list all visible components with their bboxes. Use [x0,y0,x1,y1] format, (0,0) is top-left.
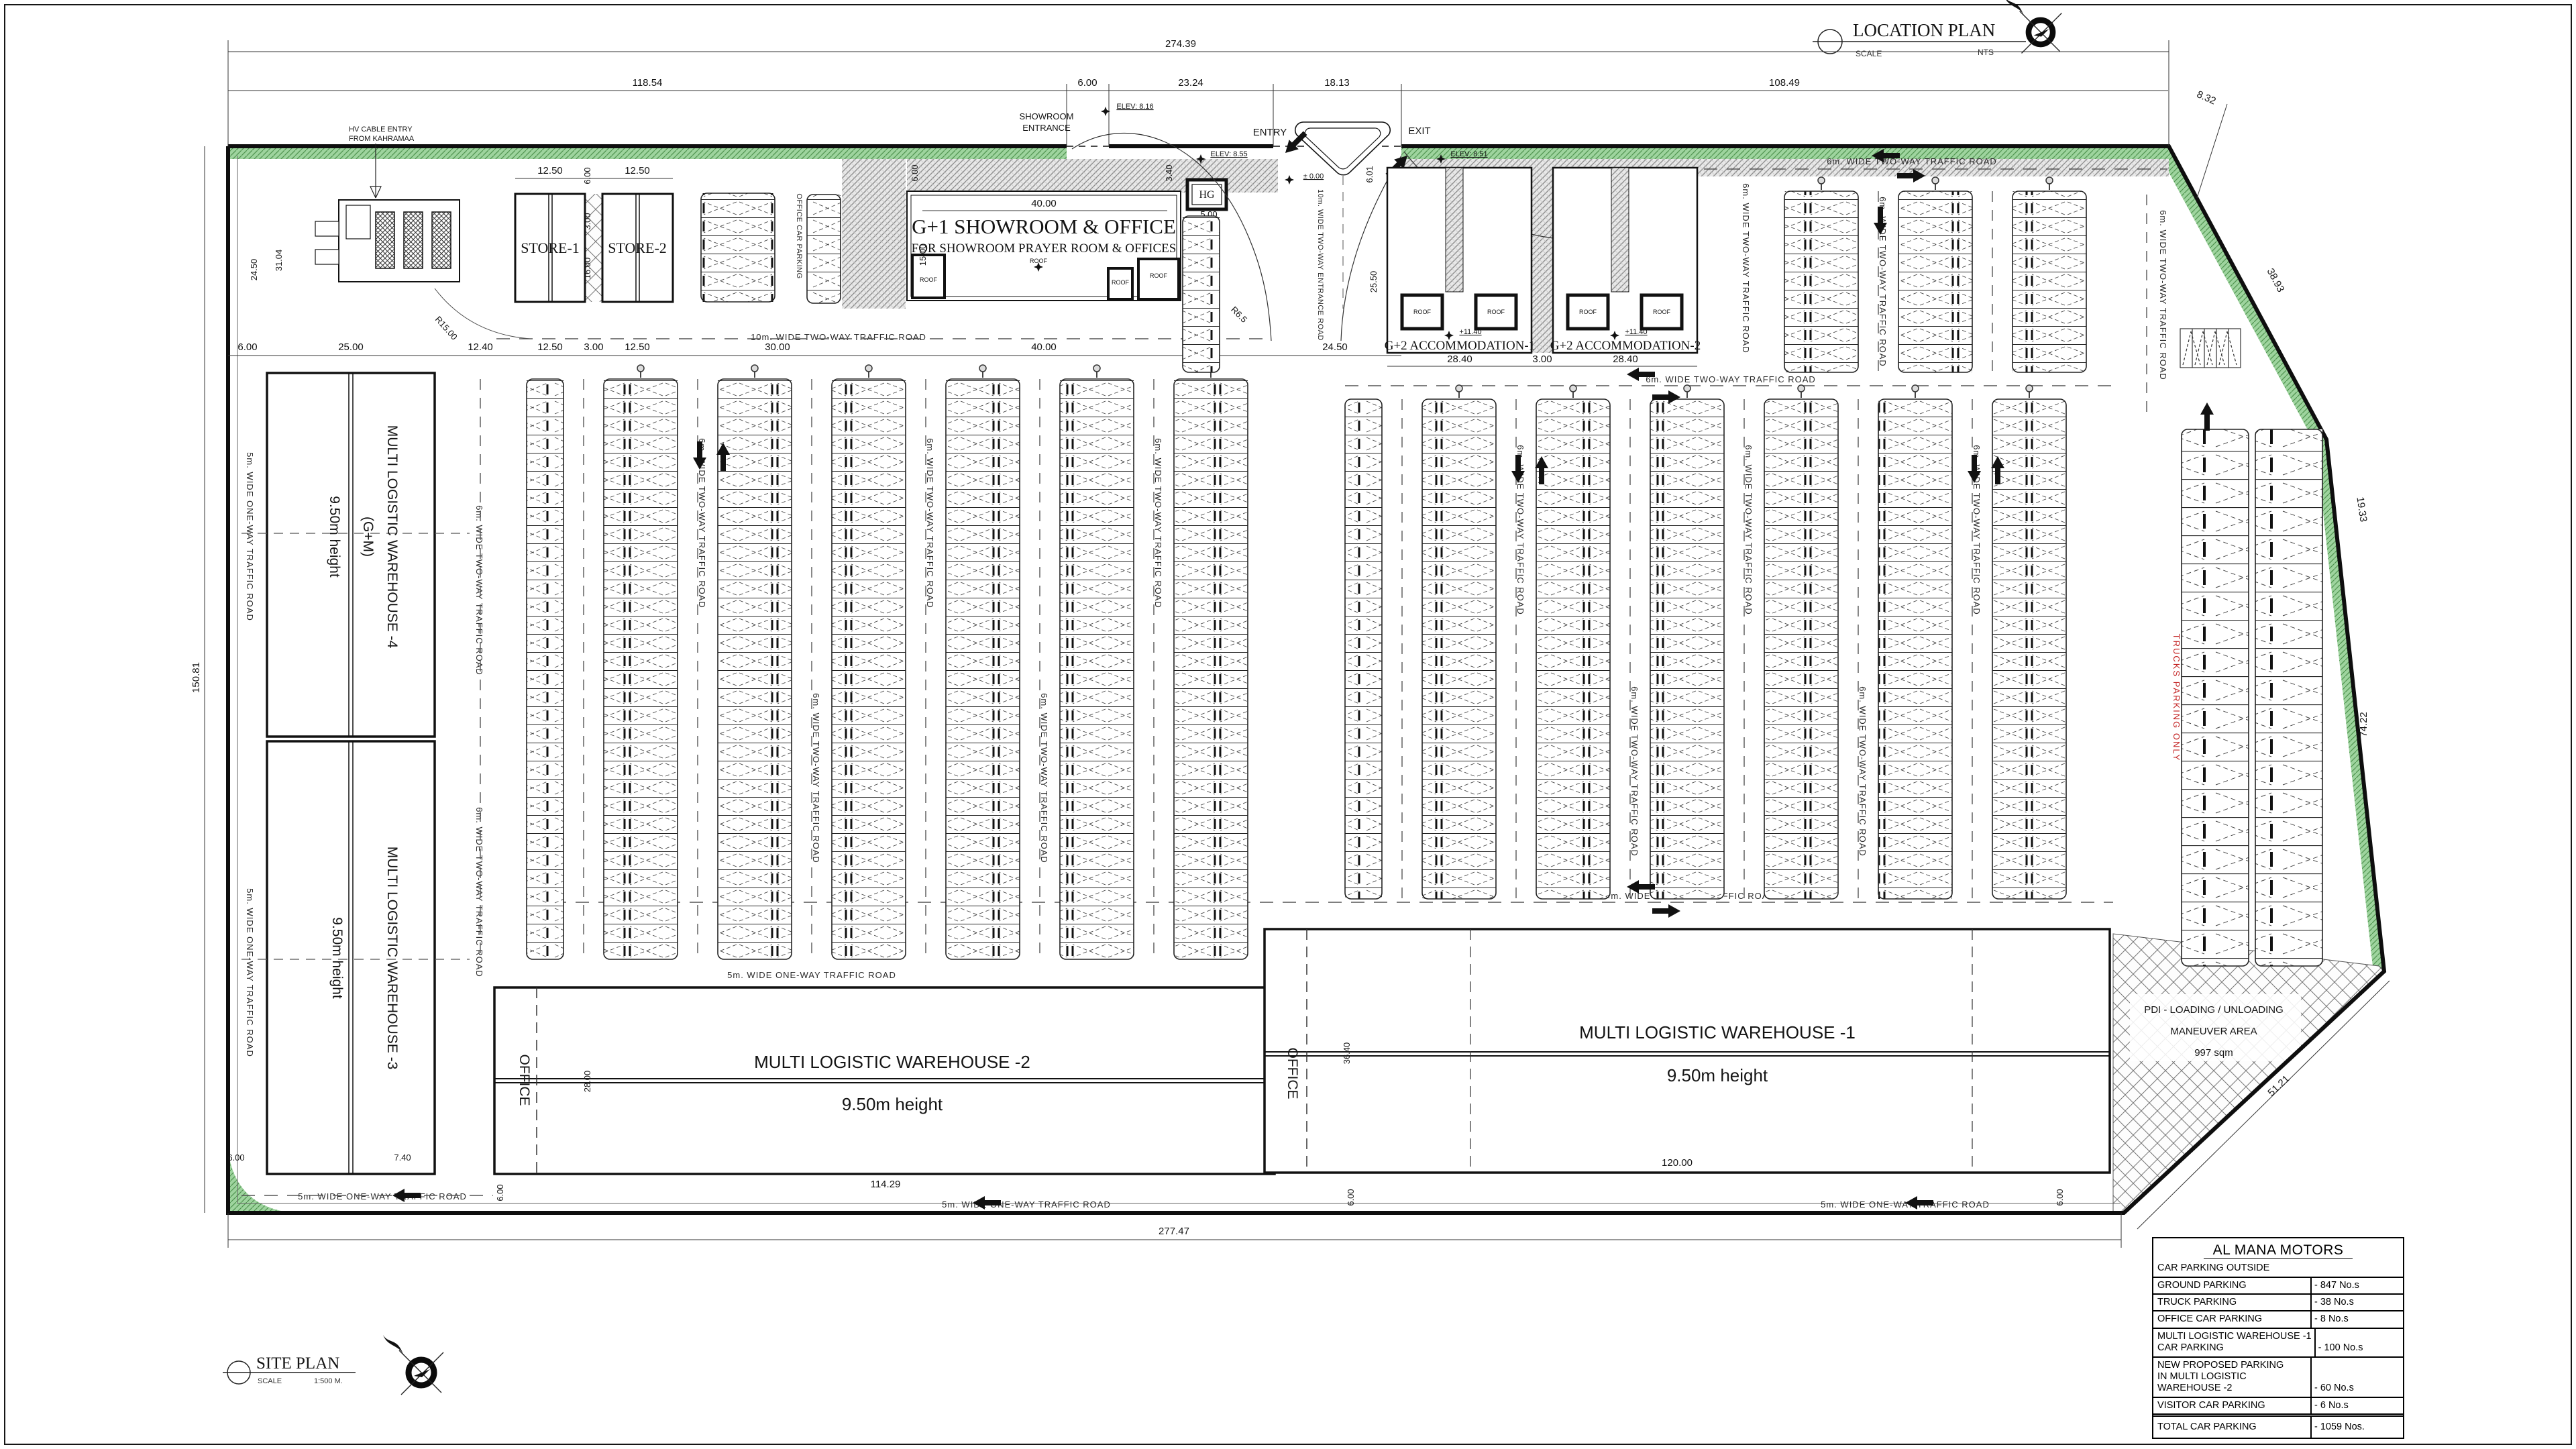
room-roof-label-2: ROOF [1112,279,1130,286]
parking-summary-table: AL MANA MOTORS CAR PARKING OUTSIDE GROUN… [2152,1237,2404,1439]
road-6m-gap-7: 6m. WIDE TWO-WAY TRAFFIC ROAD [1743,445,1754,615]
dim-6-00-stores: 6.00 [582,167,592,184]
entrance-road-label: 10m. WIDE TWO-WAY ENTRANCE ROAD [1316,189,1324,341]
acc2-roof-2: ROOF [1653,309,1671,315]
dim-23-24: 23.24 [1178,77,1203,89]
dim-25-50: 25.50 [1368,271,1379,293]
site-plan-drawing: PDI - LOADING / UNLOADING MANEUVER AREA … [0,0,2576,1449]
road-6m-wh4-side: 6m. WIDE TWO-WAY TRAFFIC ROAD [474,505,484,676]
dim-24-50-left: 24.50 [249,259,259,281]
road-5m-left-mid: 5m. WIDE ONE-WAY TRAFFIC ROAD [727,970,896,980]
dim-277-47: 277.47 [1159,1226,1189,1237]
acc2-label: G+2 ACCOMMODATION-2 [1550,339,1701,353]
road-6m-right-top: 6m. WIDE TWO-WAY TRAFFIC ROAD [1646,374,1816,384]
warehouse4-label: MULTI LOGISTIC WAREHOUSE -4 [384,425,400,649]
warehouse1-office-label: OFFICE [1285,1048,1300,1099]
location-plan-title: LOCATION PLAN [1853,20,1995,40]
row-label: TOTAL CAR PARKING [2157,1421,2308,1433]
location-plan-scale-label: SCALE [1856,49,1882,58]
dim-8-32: 8.32 [2195,89,2218,107]
road-6m-gap-3: 6m. WIDE TWO-WAY TRAFFIC ROAD [1153,438,1163,608]
row-label-2: CAR PARKING [2157,1342,2312,1354]
radius-6-5: R6.5 [1229,305,1249,325]
road-6m-gap-5: 6m. WIDE TWO-WAY TRAFFIC ROAD [1039,693,1049,863]
table-row: TRUCK PARKING - 38 No.s [2153,1293,2403,1310]
site-plan-scale-label: SCALE [258,1377,282,1385]
pdi-area-value: 997 sqm [2194,1047,2233,1059]
showroom-entrance-label: SHOWROOM [1020,111,1074,121]
radius-15-00: R15.00 [433,314,460,341]
exit-label: EXIT [1408,125,1430,137]
table-row: MULTI LOGISTIC WAREHOUSE -1 CAR PARKING … [2153,1328,2403,1356]
showroom-entrance-label-2: ENTRANCE [1022,123,1071,133]
dim-40-00-road: 40.00 [1031,341,1057,353]
pdi-label-2: MANEUVER AREA [2170,1026,2257,1037]
dim-150-81: 150.81 [191,662,202,693]
warehouse4-height: 9.50m height [327,496,342,578]
trucks-parking-label: TRUCKS PARKING ONLY [2171,634,2182,762]
site-plan-titleblock: SITE PLAN SCALE 1:500 M. [223,1335,443,1395]
dim-12-50-a: 12.50 [537,341,563,353]
dim-total-top: 274.39 [1165,38,1196,50]
office-parking-label: OFFICE CAR PARKING [795,193,803,278]
row-label: MULTI LOGISTIC WAREHOUSE -1 [2157,1331,2312,1342]
showroom-title: G+1 SHOWROOM & OFFICE [912,215,1176,238]
site-plan-sheet: { "colors": {"line":"#151515","green":"#… [0,0,2576,1449]
warehouse-3: MULTI LOGISTIC WAREHOUSE -3 9.50m height [241,741,470,1174]
showroom-subtitle: FOR SHOWROOM PRAYER ROOM & OFFICES [912,241,1177,256]
dim-16-00: 16.00 [582,258,592,280]
acc2-roof-level: +11.40 [1625,328,1647,336]
dim-40-00-showroom: 40.00 [1031,198,1057,209]
warehouse2-label: MULTI LOGISTIC WAREHOUSE -2 [754,1052,1030,1072]
warehouse1-height: 9.50m height [1667,1065,1768,1085]
dim-18-13: 18.13 [1324,77,1350,89]
dim-114-29: 114.29 [871,1179,901,1190]
dim-acc2-w: 28.40 [1613,354,1638,365]
dim-3-40: 3.40 [1164,164,1174,181]
dim-6-00-wh1a: 6.00 [1346,1189,1356,1205]
dim-15-00: 15.00 [918,244,928,266]
dim-store2-w: 12.50 [625,165,650,176]
road-6m-acc-side: 6m. WIDE TWO-WAY TRAFFIC ROAD [1741,183,1751,354]
dim-19-33: 19.33 [2354,496,2369,523]
dim-31-04: 31.04 [274,250,284,272]
table-row: NEW PROPOSED PARKING IN MULTI LOGISTIC W… [2153,1356,2403,1397]
row-label: OFFICE CAR PARKING [2157,1313,2308,1325]
warehouse4-floors: (G+M) [360,517,376,557]
row-value: - 38 No.s [2310,1295,2403,1310]
warehouse1-label: MULTI LOGISTIC WAREHOUSE -1 [1579,1022,1856,1042]
dim-3-00-gap: 3.00 [582,213,592,229]
road-6m-gap-2: 6m. WIDE TWO-WAY TRAFFIC ROAD [925,438,935,608]
dim-120-00: 120.00 [1662,1157,1693,1169]
road-5m-left-edge-2: 5m. WIDE ONE-WAY TRAFFIC ROAD [245,888,255,1057]
acc1-roof-1: ROOF [1413,309,1432,315]
acc2-roof-1: ROOF [1579,309,1597,315]
dim-6-00-corner: 6.00 [227,1152,244,1163]
acc1-roof-2: ROOF [1487,309,1505,315]
dim-acc1-w: 28.40 [1447,354,1472,365]
road-5m-left-edge-1: 5m. WIDE ONE-WAY TRAFFIC ROAD [245,452,255,621]
acc1-label: G+2 ACCOMMODATION-1 [1385,339,1535,353]
row-value: - 1059 Nos. [2310,1417,2403,1438]
acc1-roof-level: +11.40 [1459,328,1481,336]
row-label: GROUND PARKING [2157,1280,2308,1291]
room-roof-label-1: ROOF [920,276,938,283]
dim-108-49: 108.49 [1769,77,1800,89]
location-plan-scale-value: NTS [1978,48,1994,57]
pdi-label: PDI - LOADING / UNLOADING [2144,1004,2284,1016]
dim-12-40: 12.40 [468,341,493,353]
dim-24-50-road: 24.50 [1322,341,1348,353]
dim-acc-gap: 3.00 [1532,354,1552,365]
dim-7-40: 7.40 [394,1152,411,1163]
site-plan-title: SITE PLAN [256,1354,339,1373]
warehouse-1: OFFICE MULTI LOGISTIC WAREHOUSE -1 9.50m… [1265,929,2110,1206]
dim-6-00-wh2: 6.00 [495,1184,505,1201]
store2-label: STORE-2 [608,239,667,256]
row-value: - 847 No.s [2310,1278,2403,1293]
dim-25-00: 25.00 [338,341,364,353]
warehouse-4: MULTI LOGISTIC WAREHOUSE -4 (G+M) 9.50m … [241,373,470,737]
room-roof-label-3: ROOF [1150,272,1168,279]
table-row-total: TOTAL CAR PARKING - 1059 Nos. [2153,1413,2403,1438]
dim-74-22: 74.22 [2358,712,2369,737]
entry-label: ENTRY [1253,127,1287,138]
dim-store1-w: 12.50 [537,165,563,176]
row-label: NEW PROPOSED PARKING [2157,1360,2308,1371]
road-6m-gap-4: 6m. WIDE TWO-WAY TRAFFIC ROAD [811,693,821,863]
showroom-roof-label: ROOF [1030,258,1048,264]
road-6m-gap-10: 6m. WIDE TWO-WAY TRAFFIC ROAD [1858,686,1868,857]
north-compass-icon [2004,0,2062,53]
dim-28-00: 28.00 [582,1071,592,1093]
road-6m-wh3-side: 6m. WIDE TWO-WAY TRAFFIC ROAD [474,807,484,977]
dim-6-00-wh1b: 6.00 [2055,1189,2065,1205]
dim-12-50-b: 12.50 [625,341,650,353]
warehouse2-office-label: OFFICE [517,1055,532,1106]
road-6m-top-right: 6m. WIDE TWO-WAY TRAFFIC ROAD [1827,156,1997,166]
row-label: TRUCK PARKING [2157,1297,2308,1308]
dim-6-00-showroom: 6.00 [910,164,920,181]
site-plan-scale-value: 1:500 M. [314,1377,343,1385]
dim-3-00-mid: 3.00 [584,341,603,353]
road-5m-bottom-right: 5m. WIDE ONE-WAY TRAFFIC ROAD [1821,1199,1990,1210]
store1-label: STORE-1 [521,239,580,256]
small-stall-strip [2180,329,2241,368]
road-6m-right-edge: 6m. WIDE TWO-WAY TRAFFIC ROAD [2158,210,2168,380]
table-section-header: CAR PARKING OUTSIDE [2153,1260,2403,1276]
elev-marker-2: ELEV: 8.55 [1210,150,1247,158]
row-label: VISITOR CAR PARKING [2157,1400,2308,1411]
warehouse3-label: MULTI LOGISTIC WAREHOUSE -3 [384,847,400,1070]
row-value: - 100 No.s [2314,1329,2403,1356]
north-compass-icon-2 [383,1335,443,1395]
hv-cable-label: HV CABLE ENTRY [349,125,413,133]
elev-marker-3: ELEV: 8.51 [1450,150,1487,158]
hv-cable-label-2: FROM KAHRAMAA [349,135,415,143]
road-5m-bottom-left: 5m. WIDE ONE-WAY TRAFFIC ROAD [298,1191,467,1201]
row-label-3: WAREHOUSE -2 [2157,1383,2308,1394]
zero-level: ± 0.00 [1303,172,1324,180]
location-plan-titleblock: LOCATION PLAN SCALE NTS [1813,0,2061,58]
table-row: VISITOR CAR PARKING - 6 No.s [2153,1397,2403,1413]
warehouse3-height: 9.50m height [329,917,345,999]
warehouse2-height: 9.50m height [842,1094,943,1114]
road-10m-label: 10m. WIDE TWO-WAY TRAFFIC ROAD [751,332,926,342]
road-6m-gap-9: 6m. WIDE TWO-WAY TRAFFIC ROAD [1629,686,1640,857]
row-value: - 8 No.s [2310,1311,2403,1327]
dim-6-00-top: 6.00 [1077,77,1097,89]
road-5m-bottom-mid: 5m. WIDE ONE-WAY TRAFFIC ROAD [942,1199,1111,1210]
table-row: OFFICE CAR PARKING - 8 No.s [2153,1310,2403,1327]
elev-marker-1: ELEV: 8.16 [1116,103,1153,111]
row-label-2: IN MULTI LOGISTIC [2157,1371,2308,1383]
table-row: GROUND PARKING - 847 No.s [2153,1277,2403,1293]
dim-6-00-mid: 6.00 [237,341,257,353]
row-value: - 6 No.s [2310,1398,2403,1413]
hg-box-label: HG [1199,189,1215,201]
table-title: AL MANA MOTORS [2153,1238,2403,1260]
dim-38-93: 38.93 [2265,266,2287,294]
row-value: - 60 No.s [2310,1358,2403,1397]
dim-6-01: 6.01 [1364,166,1375,182]
dim-30-00: 30.00 [765,341,790,353]
dim-118-54: 118.54 [633,77,663,89]
dim-36-40: 36.40 [1342,1042,1352,1065]
